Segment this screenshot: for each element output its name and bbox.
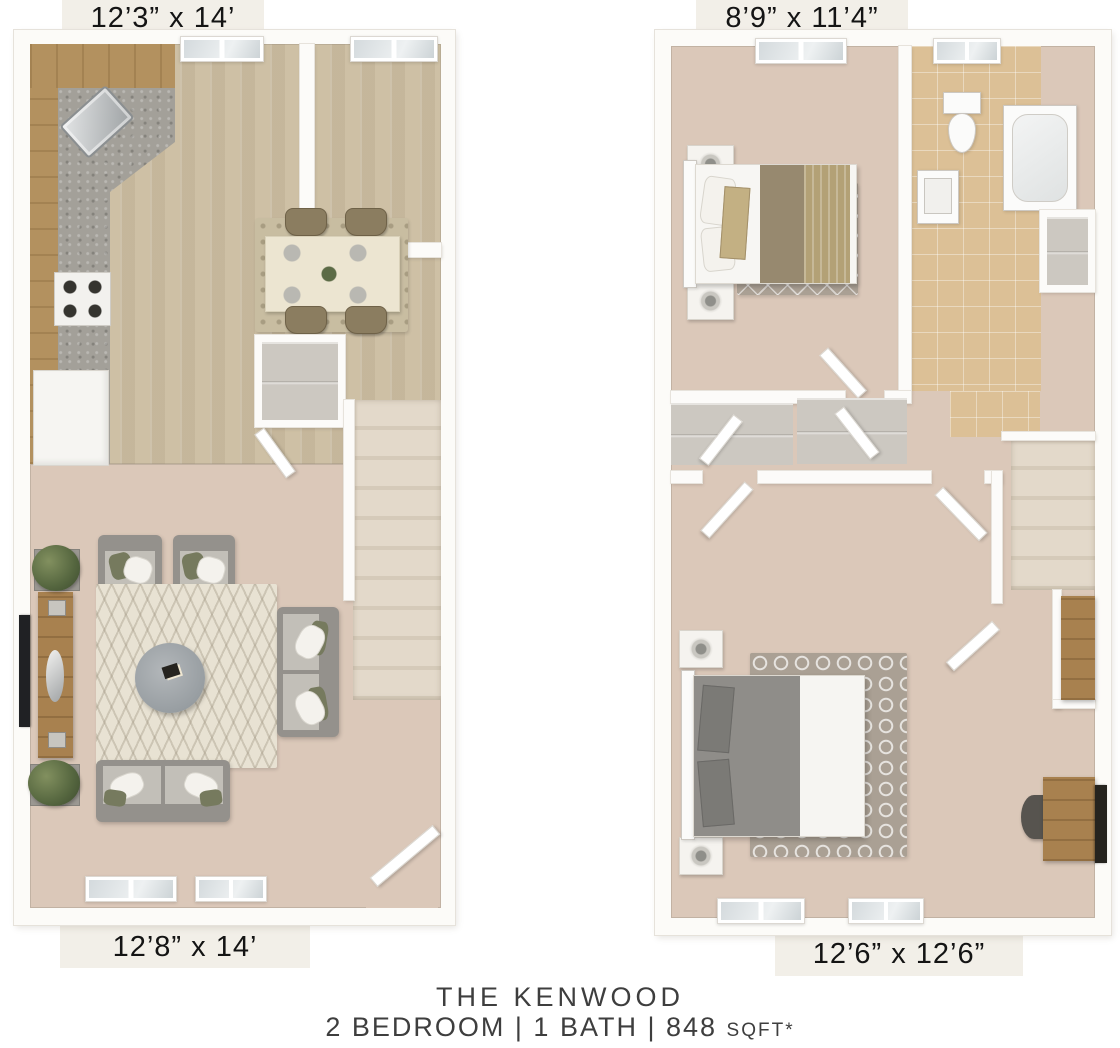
- desk: [1043, 777, 1095, 861]
- decor-frame: [48, 600, 66, 616]
- refrigerator: [33, 370, 109, 466]
- dimension-label-second-floor-bottom: 12’6” x 12’6”: [775, 932, 1023, 976]
- wall-mirror: [1095, 785, 1107, 863]
- nightstand-with-lamp: [679, 630, 723, 668]
- stairwell-wall: [1002, 432, 1095, 440]
- olive-pillow: [199, 789, 223, 808]
- plan-specs: 2 BEDROOM | 1 BATH | 848 SQFT*: [0, 1012, 1120, 1043]
- stair-railing-wall: [992, 471, 1002, 603]
- olive-pillow: [103, 789, 127, 808]
- sink-basin: [924, 178, 952, 214]
- wall-tv: [19, 615, 30, 727]
- bedroom1-window: [755, 38, 847, 64]
- bed2-mattress: [693, 675, 865, 837]
- staircase-second-floor: [1011, 440, 1095, 590]
- dining-chair: [285, 306, 327, 334]
- first-floor-plan: [14, 30, 455, 925]
- dimension-label-first-floor-bottom: 12’8” x 14’: [60, 926, 310, 968]
- entry-room-window: [350, 36, 438, 62]
- dining-chair: [345, 306, 387, 334]
- living-room-window: [85, 876, 177, 902]
- bed2-pillow: [697, 759, 735, 828]
- bedroom2-window: [717, 898, 805, 924]
- bathtub-basin: [1012, 114, 1068, 202]
- coffee-table: [135, 643, 205, 713]
- bed1-runner: [804, 165, 850, 283]
- living-room-window: [195, 876, 267, 902]
- bathtub: [1003, 105, 1077, 211]
- plan-specs-text: 2 BEDROOM | 1 BATH | 848: [325, 1012, 717, 1042]
- bedroom2-top-wall: [671, 471, 702, 483]
- dining-chair: [285, 208, 327, 236]
- floorplan-sheet: 12’3” x 14’ 8’9” x 11’4” 12’8” x 14’ 12’…: [0, 0, 1120, 1048]
- tv-console: [38, 592, 73, 758]
- second-floor-plan: [655, 30, 1111, 935]
- bed1-blanket: [760, 165, 804, 283]
- bedroom2-top-wall: [758, 471, 931, 483]
- understair-closet-wall: [1053, 590, 1061, 708]
- bedroom1-bathroom-wall: [899, 46, 911, 391]
- plan-specs-unit: SQFT*: [727, 1020, 795, 1041]
- bed1-mattress: [695, 164, 857, 284]
- bathroom-sink: [917, 170, 959, 224]
- decor-sculpture: [46, 650, 64, 702]
- nightstand-with-lamp: [679, 837, 723, 875]
- loveseat: [277, 607, 339, 737]
- stair-railing-wall: [344, 400, 354, 600]
- pantry-shelves: [262, 342, 338, 420]
- decor-frame: [48, 732, 66, 748]
- plant: [32, 545, 80, 591]
- kitchen-window: [180, 36, 264, 62]
- dining-table: [265, 236, 400, 312]
- plan-title: THE KENWOOD: [0, 982, 1120, 1013]
- dining-chair: [345, 208, 387, 236]
- bed1-accent-pillow: [720, 186, 751, 260]
- bathroom-window: [933, 38, 1001, 64]
- kitchen-cabinet-run-top: [30, 44, 175, 88]
- understair-closet-wall: [1053, 700, 1095, 708]
- understair-closet-shelves: [1061, 596, 1095, 700]
- bedroom2-window: [848, 898, 924, 924]
- linen-closet-shelves: [1047, 217, 1088, 285]
- bathroom-hall-tile: [950, 391, 1040, 437]
- sofa: [96, 760, 230, 822]
- stove: [54, 272, 111, 326]
- toilet-tank: [943, 92, 981, 114]
- bed2-pillow: [697, 685, 735, 754]
- staircase-first-floor: [353, 400, 441, 700]
- plant: [28, 760, 80, 806]
- coffee-table-books: [162, 663, 181, 679]
